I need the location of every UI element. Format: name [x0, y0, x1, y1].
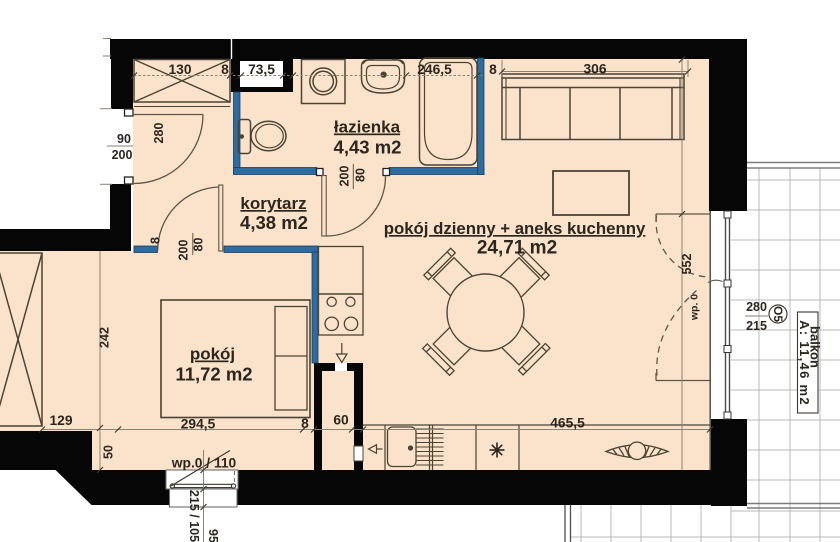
svg-text:200: 200 — [177, 240, 191, 261]
svg-text:280: 280 — [152, 123, 166, 144]
svg-text:200: 200 — [112, 148, 133, 162]
svg-text:11,72 m2: 11,72 m2 — [175, 364, 252, 385]
svg-text:246,5: 246,5 — [417, 62, 452, 77]
svg-text:200: 200 — [338, 166, 352, 187]
svg-text:4,43 m2: 4,43 m2 — [334, 137, 402, 158]
svg-text:280: 280 — [746, 300, 767, 314]
svg-text:O5: O5 — [771, 306, 785, 322]
svg-text:242: 242 — [98, 327, 112, 348]
svg-text:wp. 0: wp. 0 — [689, 294, 701, 321]
svg-text:60: 60 — [333, 413, 349, 428]
svg-text:294,5: 294,5 — [181, 417, 216, 432]
svg-text:465,5: 465,5 — [550, 416, 585, 431]
svg-text:korytarz: korytarz — [240, 194, 306, 213]
svg-text:wp.0 / 110: wp.0 / 110 — [171, 456, 237, 471]
svg-text:215 / 105: 215 / 105 — [187, 490, 201, 542]
svg-text:8: 8 — [301, 416, 309, 431]
svg-text:8: 8 — [149, 237, 163, 244]
svg-text:24,71 m2: 24,71 m2 — [477, 238, 557, 259]
svg-text:8: 8 — [221, 62, 229, 77]
svg-text:90: 90 — [117, 132, 131, 146]
svg-text:129: 129 — [49, 413, 72, 428]
svg-text:95: 95 — [206, 529, 220, 542]
svg-text:A: 11,46 m2: A: 11,46 m2 — [797, 320, 812, 406]
svg-text:73,5: 73,5 — [248, 62, 275, 77]
svg-text:pokój: pokój — [190, 345, 235, 364]
svg-text:215: 215 — [746, 319, 767, 333]
svg-text:8: 8 — [489, 62, 497, 77]
svg-text:łazienka: łazienka — [334, 118, 401, 137]
svg-text:4,38 m2: 4,38 m2 — [240, 212, 308, 233]
svg-text:306: 306 — [583, 62, 606, 77]
svg-text:50: 50 — [102, 445, 116, 459]
svg-text:pokój dzienny + aneks kuchenny: pokój dzienny + aneks kuchenny — [384, 219, 646, 238]
svg-text:552: 552 — [680, 254, 694, 275]
svg-text:130: 130 — [168, 62, 191, 77]
svg-text:80: 80 — [354, 168, 368, 182]
svg-text:80: 80 — [192, 238, 206, 252]
